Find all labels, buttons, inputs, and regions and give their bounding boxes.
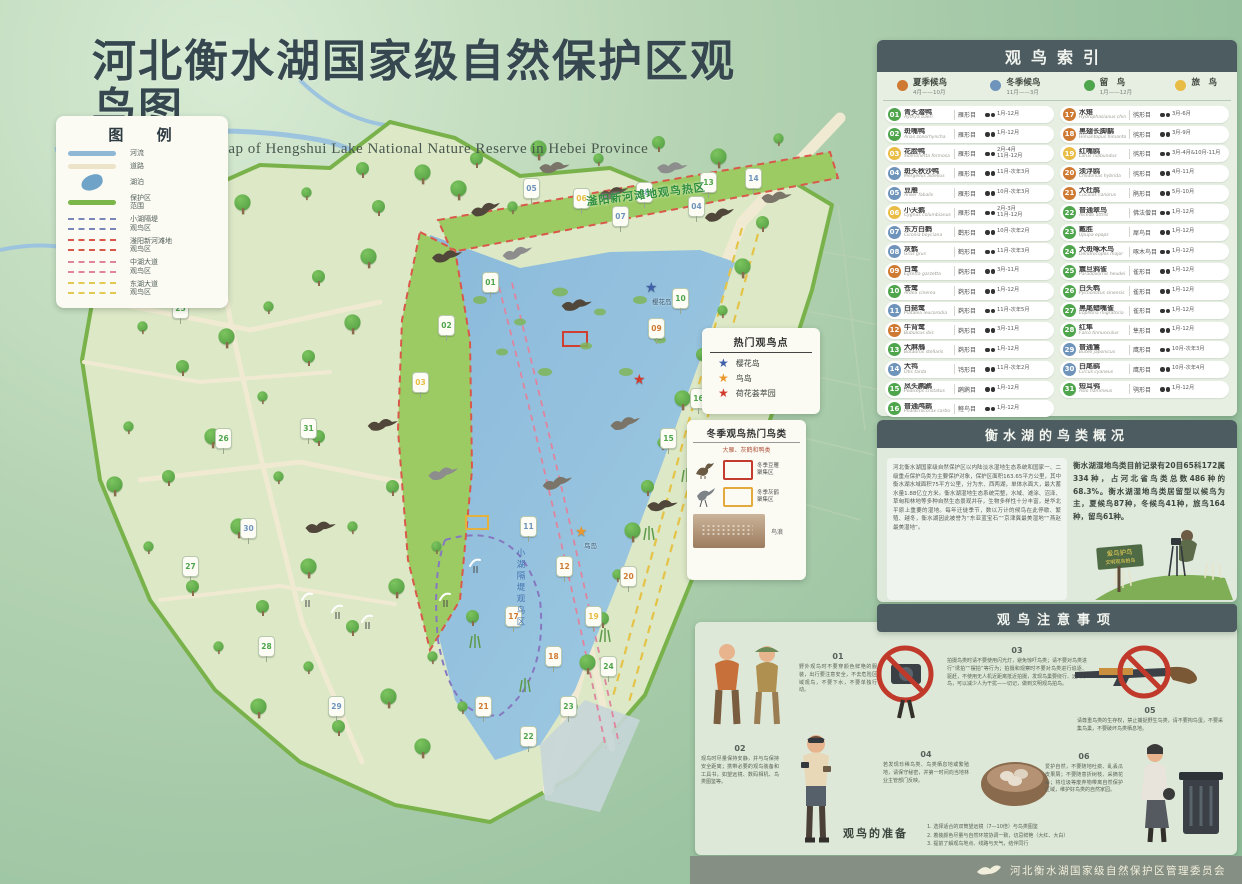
bird-number-badge: 30	[1063, 363, 1076, 376]
bird-number-badge: 08	[888, 245, 901, 258]
divider	[1129, 227, 1130, 237]
bird-row: 29普通鵟Buteo japonicus鹰形目10月-次年3月	[1060, 341, 1229, 358]
overview-header: 衡水湖的鸟类概况	[877, 420, 1237, 448]
bird-order: 雀形目	[1133, 306, 1158, 315]
bird-latin-name: Anser fabalis	[904, 194, 951, 199]
season-text: 夏季候鸟4月——10月	[913, 78, 947, 96]
binoculars-icon	[985, 249, 995, 255]
bird-names: 红嘴鸥Larus ridibundus	[1079, 148, 1126, 160]
photographer-illustration: 爱鸟护鸟 文明观鸟拍鸟	[1075, 508, 1233, 600]
bird-months: 1月-12月	[1172, 288, 1226, 294]
crane-area-label: 冬季灰鹤 聚集区	[757, 490, 779, 504]
divider	[1129, 384, 1130, 394]
season-dates: 11月——3月	[1006, 88, 1040, 96]
bird-months: 1月-12月	[1172, 249, 1226, 255]
bird-number-badge: 27	[1063, 304, 1076, 317]
bird-number-badge: 29	[1063, 343, 1076, 356]
bird-row: 05豆雁Anser fabalis雁形目10月-次年3月	[885, 185, 1054, 202]
divider	[1129, 306, 1130, 316]
winter-title: 冬季观鸟热门鸟类	[693, 426, 800, 440]
hikers-illustration	[701, 638, 797, 732]
bird-months: 1月-12月	[1172, 308, 1226, 314]
bird-row: 11白琵鹭Platalea leucorodia鹈形目11月-次年5月	[885, 302, 1054, 319]
map-bird-marker-26: 26	[215, 428, 232, 449]
binoculars-icon	[985, 268, 995, 274]
bird-row: 02斑嘴鸭Anas zonorhyncha雁形目1月-12月	[885, 126, 1054, 143]
bird-list: 01青头潜鸭Aythya baeri雁形目1月-12月02斑嘴鸭Anas zon…	[877, 101, 1237, 425]
divider	[1129, 149, 1130, 159]
note-1-number: 01	[799, 652, 877, 661]
binoculars-icon	[1160, 170, 1170, 176]
legend-symbol	[68, 218, 116, 230]
bird-row: 13大麻鳽Botaurus stellaris鹈形目1月-12月	[885, 341, 1054, 358]
bird-latin-name: Paradoxornis heudei	[1079, 273, 1126, 278]
divider	[954, 345, 955, 355]
bird-row: 31短耳鸮Asio flammeus鸮形目1月-12月	[1060, 381, 1229, 398]
legend-label: 中湖大道 观鸟区	[130, 258, 158, 276]
winter-crane-row: 冬季灰鹤 聚集区	[693, 486, 800, 508]
bird-latin-name: Falco tinnunculus	[1079, 332, 1126, 337]
bird-names: 黑翅长脚鹬Himantopus himantopus	[1079, 128, 1126, 140]
bird-latin-name: Circus cyaneus	[1079, 371, 1126, 376]
bird-names: 须浮鸥Chlidonias hybrida	[1079, 168, 1126, 180]
bird-months: 1月-12月	[997, 406, 1051, 412]
map-bird-marker-09: 09	[648, 318, 665, 339]
hotspot-items: ★樱花岛★鸟岛★荷花荟萃园	[710, 357, 812, 399]
map-label-bird-island: 鸟岛	[584, 540, 597, 550]
star-icon: ★	[718, 357, 729, 369]
bird-order: 鸻形目	[1133, 169, 1158, 178]
season-dot-icon	[897, 80, 908, 91]
bird-months: 11月-次年5月	[997, 308, 1051, 314]
binoculars-icon	[1160, 151, 1170, 157]
bird-row: 07东方白鹳Ciconia boyciana鹳形目10月-次年2月	[885, 224, 1054, 241]
map-bird-marker-07: 07	[612, 206, 629, 227]
bird-row: 10苍鹭Ardea cinerea鹈形目1月-12月	[885, 283, 1054, 300]
legend-item: 湖泊	[66, 175, 218, 190]
bird-latin-name: Cuculus canorus	[1079, 194, 1126, 199]
divider	[954, 306, 955, 316]
divider	[1129, 266, 1130, 276]
bird-months: 10月-次年2月	[997, 229, 1051, 235]
bird-number-badge: 03	[888, 147, 901, 160]
map-bird-marker-22: 22	[520, 726, 537, 747]
bird-months: 2月-4月 11月-12月	[997, 148, 1051, 160]
note-5-number: 05	[1077, 706, 1223, 715]
binoculars-icon	[985, 327, 995, 333]
hotspot-label: 樱花岛	[736, 358, 760, 369]
bird-names: 普通翠鸟Alcedo atthis	[1079, 207, 1126, 219]
bird-names: 青头潜鸭Aythya baeri	[904, 109, 951, 121]
bird-latin-name: Ardea cinerea	[904, 292, 951, 297]
bird-number-badge: 10	[888, 285, 901, 298]
binoculars-icon	[1160, 386, 1170, 392]
bird-row: 25震旦鸦雀Paradoxornis heudei雀形目1月-12月	[1060, 263, 1229, 280]
bird-order: 鹈形目	[958, 306, 983, 315]
divider	[954, 266, 955, 276]
bird-names: 豆雁Anser fabalis	[904, 187, 951, 199]
bird-names: 红隼Falco tinnunculus	[1079, 324, 1126, 336]
bird-names: 白头鹎Pycnonotus sinensis	[1079, 285, 1126, 297]
divider	[954, 325, 955, 335]
bird-latin-name: Chlidonias hybrida	[1079, 175, 1126, 180]
bird-list-column-1: 01青头潜鸭Aythya baeri雁形目1月-12月02斑嘴鸭Anas zon…	[885, 106, 1054, 420]
map-bird-marker-02: 02	[438, 315, 455, 336]
winter-birds-card: 冬季观鸟热门鸟类 大雁、灰鹤和鸭类 冬季豆雁 聚集区 冬季灰鹤 聚集区 鸟浪	[687, 420, 806, 580]
season-summer: 夏季候鸟4月——10月	[897, 78, 947, 96]
legend-symbol	[68, 200, 116, 205]
legend-swatch-4-icon	[66, 200, 118, 205]
hotspot-label: 鸟岛	[736, 373, 752, 384]
bird-latin-name: Otis tarda	[904, 371, 951, 376]
legend-symbol	[68, 282, 116, 294]
map-hotspot-star-1: ★	[645, 281, 658, 295]
map-bird-marker-15: 15	[660, 428, 677, 449]
bird-names: 震旦鸦雀Paradoxornis heudei	[1079, 266, 1126, 278]
bird-row: 03花脸鸭Sibirionetta formosa雁形目2月-4月 11月-12…	[885, 145, 1054, 162]
bird-names: 戴胜Upupa epops	[1079, 226, 1126, 238]
bird-number-badge: 23	[1063, 226, 1076, 239]
map-label-yinghua-island: 樱花岛	[652, 296, 672, 306]
bird-names: 普通鸬鹚Phalacrocorax carbo	[904, 403, 951, 415]
bird-order: 鹃形目	[1133, 189, 1158, 198]
overview-card: 衡水湖的鸟类概况 河北衡水湖国家级自然保护区以内陆淡水湿地生态系统和国家一、二级…	[877, 420, 1237, 602]
bird-names: 斑头秋沙鸭Mergellus albellus	[904, 168, 951, 180]
map-bird-marker-19: 19	[585, 606, 602, 627]
bird-order: 雀形目	[1133, 287, 1158, 296]
bird-row: 21大杜鹃Cuculus canorus鹃形目5月-10月	[1060, 185, 1229, 202]
bird-months: 1月-12月	[997, 347, 1051, 353]
bird-row: 26白头鹎Pycnonotus sinensis雀形目1月-12月	[1060, 283, 1229, 300]
nest-illustration	[977, 750, 1053, 810]
divider	[954, 129, 955, 139]
bird-names: 大麻鳽Botaurus stellaris	[904, 344, 951, 356]
bird-names: 苍鹭Ardea cinerea	[904, 285, 951, 297]
note-2-text: 观鸟时尽量保持安静，并与鸟保持安全距离；携带必要的观鸟装备和工具书，如望远镜、数…	[701, 756, 779, 787]
binoculars-icon	[985, 347, 995, 353]
bird-latin-name: Sibirionetta formosa	[904, 155, 951, 160]
crane-area-swatch	[723, 487, 753, 507]
legend-swatch-7-icon	[66, 261, 118, 273]
divider	[1129, 325, 1130, 335]
binoculars-icon	[1160, 229, 1170, 235]
bird-months: 1月-12月	[1172, 210, 1226, 216]
map-bird-marker-11: 11	[520, 516, 537, 537]
bird-order: 佛法僧目	[1133, 208, 1158, 217]
binoculars-icon	[985, 229, 995, 235]
bird-order: 鹈形目	[958, 267, 983, 276]
map-bird-marker-31: 31	[300, 418, 317, 439]
bird-names: 灰鹤Grus grus	[904, 246, 951, 258]
bird-months: 10月-次年3月	[1172, 347, 1226, 353]
bird-names: 白尾鹞Circus cyaneus	[1079, 363, 1126, 375]
bird-row: 20须浮鸥Chlidonias hybrida鸻形目4月-11月	[1060, 165, 1229, 182]
bird-number-badge: 17	[1063, 108, 1076, 121]
map-bird-marker-23: 23	[560, 696, 577, 717]
reserve-logo-icon	[976, 862, 1002, 878]
bird-months: 1月-12月	[1172, 268, 1226, 274]
bird-names: 牛背鹭Bubulcus ibis	[904, 324, 951, 336]
bird-wave-label: 鸟浪	[771, 527, 783, 536]
bird-names: 白鹭Egretta garzetta	[904, 266, 951, 278]
bird-order: 啄木鸟目	[1133, 247, 1158, 256]
bird-number-badge: 26	[1063, 285, 1076, 298]
prep-line-1: 1. 选择适合的双筒望远镜（7—10倍）与鸟类图鉴	[927, 823, 1167, 832]
map-bird-marker-10: 10	[672, 288, 689, 309]
map-bird-marker-03: 03	[412, 372, 429, 393]
season-dot-icon	[990, 80, 1001, 91]
binoculars-icon	[1160, 347, 1170, 353]
legend-item: 保护区 范围	[66, 194, 218, 212]
binoculars-icon	[985, 170, 995, 176]
note-1-text: 野外观鸟时不要穿颜色鲜艳的服装，出行要注意安全，不去危险区域观鸟，不要下水，不要…	[799, 664, 877, 695]
note-item-6: 06 爱护自然，不要随地吐痰、乱丢瓜皮果屑；不要随意折树枝、采摘花朵；将垃圾等废…	[1045, 752, 1123, 795]
bird-names: 短耳鸮Asio flammeus	[1079, 383, 1126, 395]
bird-order: 雁形目	[958, 169, 983, 178]
winter-photo-row: 鸟浪	[693, 514, 800, 548]
note-4-text: 若发现珍稀鸟类、鸟类栖息地或繁殖地，请保守秘密，并第一时间向当地林业主管部门反映…	[883, 762, 969, 785]
map-bird-marker-04: 04	[688, 196, 705, 217]
note-3-number: 03	[947, 646, 1087, 655]
bird-latin-name: Asio flammeus	[1079, 390, 1126, 395]
bird-row: 24大斑啄木鸟Dendrocopos major啄木鸟目1月-12月	[1060, 243, 1229, 260]
bird-index-header: 观鸟索引	[877, 40, 1237, 72]
binoculars-icon	[1160, 366, 1170, 372]
bird-number-badge: 05	[888, 187, 901, 200]
divider	[954, 208, 955, 218]
divider	[1129, 188, 1130, 198]
hotspot-title: 热门观鸟点	[710, 334, 812, 353]
binoculars-icon	[1160, 268, 1170, 274]
bird-months: 1月-12月	[1172, 229, 1226, 235]
bird-number-badge: 12	[888, 324, 901, 337]
hotspot-card: 热门观鸟点 ★樱花岛★鸟岛★荷花荟萃园	[702, 328, 820, 414]
legend-symbol	[68, 164, 116, 169]
map-bird-marker-05: 05	[523, 178, 540, 199]
note-5-text: 请尊重鸟类的生存权，禁止捕捉野生鸟类，请不要掏鸟蛋，不要采集鸟巢，不要破坏鸟类栖…	[1077, 718, 1223, 734]
bird-names: 水雉Hydrophasianus chirurgus	[1079, 109, 1126, 121]
note-item-2: 02 观鸟时尽量保持安静，并与鸟保持安全距离；携带必要的观鸟装备和工具书，如望远…	[701, 744, 779, 787]
bird-latin-name: Alcedo atthis	[1079, 214, 1126, 219]
bird-latin-name: Bubulcus ibis	[904, 332, 951, 337]
binoculars-icon	[985, 366, 995, 372]
bird-order: 雁形目	[958, 149, 983, 158]
bird-number-badge: 09	[888, 265, 901, 278]
bird-order: 犀鸟目	[1133, 228, 1158, 237]
bird-row: 17水雉Hydrophasianus chirurgus鸻形目3月-6月	[1060, 106, 1229, 123]
bird-row: 30白尾鹞Circus cyaneus鹰形目10月-次年4月	[1060, 361, 1229, 378]
star-icon: ★	[718, 387, 729, 399]
binoculars-icon	[1160, 308, 1170, 314]
map-bird-marker-20: 20	[620, 566, 637, 587]
bird-latin-name: Cygnus columbianus	[904, 214, 951, 219]
legend-item: 中湖大道 观鸟区	[66, 258, 218, 276]
winter-goose-row: 冬季豆雁 聚集区	[693, 460, 800, 480]
season-label: 旅 鸟	[1191, 78, 1217, 88]
map-bird-marker-28: 28	[258, 636, 275, 657]
bird-names: 普通鵟Buteo japonicus	[1079, 344, 1126, 356]
bird-months: 4月-11月	[1172, 170, 1226, 176]
bird-order: 鸻形目	[1133, 130, 1158, 139]
bird-order: 雁形目	[958, 189, 983, 198]
bird-number-badge: 18	[1063, 128, 1076, 141]
bird-number-badge: 07	[888, 226, 901, 239]
bird-row: 15凤头䴙䴘Podiceps cristatus䴙䴘目1月-12月	[885, 381, 1054, 398]
bird-latin-name: Botaurus stellaris	[904, 351, 951, 356]
legend-swatch-6-icon	[66, 239, 118, 251]
legend-swatch-3-icon	[66, 175, 118, 190]
bird-order: 鹈形目	[958, 345, 983, 354]
legend-label: 东湖大道 观鸟区	[130, 280, 158, 298]
bird-row: 27黑尾蜡嘴雀Eophona migratoria雀形目1月-12月	[1060, 302, 1229, 319]
map-bird-marker-30: 30	[240, 518, 257, 539]
bird-latin-name: Mergellus albellus	[904, 175, 951, 180]
bird-latin-name: Dendrocopos major	[1079, 253, 1126, 258]
bird-list-column-2: 17水雉Hydrophasianus chirurgus鸻形目3月-6月18黑翅…	[1060, 106, 1229, 420]
note-2-number: 02	[701, 744, 779, 753]
bird-months: 1月-12月	[1172, 386, 1226, 392]
bird-months: 3月-11月	[997, 268, 1051, 274]
no-hunting-icon	[1069, 642, 1219, 702]
divider	[954, 247, 955, 257]
bird-number-badge: 13	[888, 343, 901, 356]
bird-row: 22普通翠鸟Alcedo atthis佛法僧目1月-12月	[1060, 204, 1229, 221]
map-hotspot-star-2: ★	[575, 525, 588, 539]
bird-order: 鹈形目	[958, 287, 983, 296]
bird-row: 06小天鹅Cygnus columbianus雁形目2月-3月 11月-12月	[885, 204, 1054, 221]
hotspot-item: ★樱花岛	[718, 357, 812, 369]
legend-label: 滏阳新河滩地 观鸟区	[130, 237, 172, 255]
notes-header: 观鸟注意事项	[877, 604, 1237, 632]
divider	[954, 286, 955, 296]
bird-months: 10月-次年3月	[997, 190, 1051, 196]
bird-order: 鹰形目	[1133, 345, 1158, 354]
legend-swatch-1-icon	[66, 151, 118, 156]
hotspot-label: 荷花荟萃园	[736, 388, 776, 399]
divider	[1129, 364, 1130, 374]
bird-latin-name: Larus ridibundus	[1079, 155, 1126, 160]
legend-label: 湖泊	[130, 178, 144, 187]
bird-order: 鸮形目	[1133, 385, 1158, 394]
divider	[1129, 345, 1130, 355]
bird-order: 鹰形目	[1133, 365, 1158, 374]
divider	[954, 110, 955, 120]
legend-label: 河流	[130, 149, 144, 158]
bird-row: 09白鹭Egretta garzetta鹈形目3月-11月	[885, 263, 1054, 280]
bird-order: 雁形目	[958, 208, 983, 217]
bird-months: 1月-12月	[997, 288, 1051, 294]
bird-months: 10月-次年4月	[1172, 366, 1226, 372]
binoculars-icon	[1160, 210, 1170, 216]
bird-names: 小天鹅Cygnus columbianus	[904, 207, 951, 219]
bird-order: 鹤形目	[958, 247, 983, 256]
bird-names: 凤头䴙䴘Podiceps cristatus	[904, 383, 951, 395]
binoculars-icon	[985, 112, 995, 118]
bird-number-badge: 19	[1063, 147, 1076, 160]
divider	[1129, 110, 1130, 120]
bird-index-card: 观鸟索引 夏季候鸟4月——10月冬季候鸟11月——3月留 鸟1月——12月旅 鸟…	[877, 40, 1237, 416]
bird-number-badge: 22	[1063, 206, 1076, 219]
bird-months: 3月-6月	[1172, 112, 1226, 118]
bird-latin-name: Ciconia boyciana	[904, 234, 951, 239]
map-bird-marker-18: 18	[545, 646, 562, 667]
bird-row: 14大鸨Otis tarda鸨形目11月-次年2月	[885, 361, 1054, 378]
bird-months: 11月-次年3月	[997, 249, 1051, 255]
bird-months: 3月-11月	[997, 327, 1051, 333]
bird-row: 19红嘴鸥Larus ridibundus鸻形目3月-4月&10月-11月	[1060, 145, 1229, 162]
bird-wave-photo	[693, 514, 765, 548]
poster: 0102030405060708091011121314151617181920…	[0, 0, 1242, 884]
divider	[954, 188, 955, 198]
legend-item: 小湖隔堤 观鸟区	[66, 215, 218, 233]
bird-order: 鸻形目	[1133, 149, 1158, 158]
binoculars-icon	[985, 151, 995, 157]
bird-latin-name: Himantopus himantopus	[1079, 136, 1126, 141]
bird-latin-name: Buteo japonicus	[1079, 351, 1126, 356]
note-item-1: 01 野外观鸟时不要穿颜色鲜艳的服装，出行要注意安全，不去危险区域观鸟，不要下水…	[799, 652, 877, 695]
hotspot-item: ★荷花荟萃园	[718, 387, 812, 399]
bird-order: 隼形目	[1133, 326, 1158, 335]
no-flash-photo-icon	[873, 638, 937, 720]
divider	[1129, 286, 1130, 296]
bird-names: 白琵鹭Platalea leucorodia	[904, 305, 951, 317]
legend-label: 道路	[130, 162, 144, 171]
legend-symbol	[68, 239, 116, 251]
bird-latin-name: Aythya baeri	[904, 116, 951, 121]
hotspot-item: ★鸟岛	[718, 372, 812, 384]
season-dates: 4月——10月	[913, 88, 947, 96]
winter-subtitle: 大雁、灰鹤和鸭类	[693, 442, 800, 454]
bird-order: 雀形目	[1133, 267, 1158, 276]
legend-card: 图 例 河流道路湖泊保护区 范围小湖隔堤 观鸟区滏阳新河滩地 观鸟区中湖大道 观…	[56, 116, 228, 308]
map-bird-marker-24: 24	[600, 656, 617, 677]
bird-number-badge: 24	[1063, 245, 1076, 258]
bird-row: 01青头潜鸭Aythya baeri雁形目1月-12月	[885, 106, 1054, 123]
legend-label: 小湖隔堤 观鸟区	[130, 215, 158, 233]
footer-bar: 河北衡水湖国家级自然保护区管理委员会	[690, 856, 1242, 884]
bird-order: 鹈形目	[958, 326, 983, 335]
note-item-5: 05 请尊重鸟类的生存权，禁止捕捉野生鸟类，请不要掏鸟蛋，不要采集鸟巢，不要破坏…	[1077, 706, 1223, 734]
binoculars-icon	[985, 288, 995, 294]
map-bird-marker-01: 01	[482, 272, 499, 293]
bird-months: 1月-12月	[997, 112, 1051, 118]
binoculars-icon	[1160, 327, 1170, 333]
bird-names: 斑嘴鸭Anas zonorhyncha	[904, 128, 951, 140]
legend-label: 保护区 范围	[130, 194, 151, 212]
bird-names: 大杜鹃Cuculus canorus	[1079, 187, 1126, 199]
legend-item: 滏阳新河滩地 观鸟区	[66, 237, 218, 255]
bird-months: 11月-次年2月	[997, 366, 1051, 372]
crane-icon	[693, 486, 719, 508]
binoculars-icon	[1160, 112, 1170, 118]
divider	[954, 404, 955, 414]
season-label: 夏季候鸟	[913, 78, 947, 88]
map-bird-marker-12: 12	[556, 556, 573, 577]
birdwatcher-illustration	[787, 732, 845, 848]
bird-latin-name: Platalea leucorodia	[904, 312, 951, 317]
divider	[954, 364, 955, 374]
binoculars-icon	[1160, 190, 1170, 196]
legend-item: 河流	[66, 149, 218, 158]
note-item-3: 03 拍摄鸟类时请不要使用闪光灯，避免惊吓鸟类；请不要对鸟类进行“诱拍”“摆拍”…	[947, 646, 1087, 689]
bird-latin-name: Anas zonorhyncha	[904, 136, 951, 141]
bird-number-badge: 28	[1063, 324, 1076, 337]
bird-latin-name: Egretta garzetta	[904, 273, 951, 278]
bird-names: 大鸨Otis tarda	[904, 363, 951, 375]
divider	[1129, 208, 1130, 218]
bird-number-badge: 01	[888, 108, 901, 121]
bird-latin-name: Upupa epops	[1079, 234, 1126, 239]
